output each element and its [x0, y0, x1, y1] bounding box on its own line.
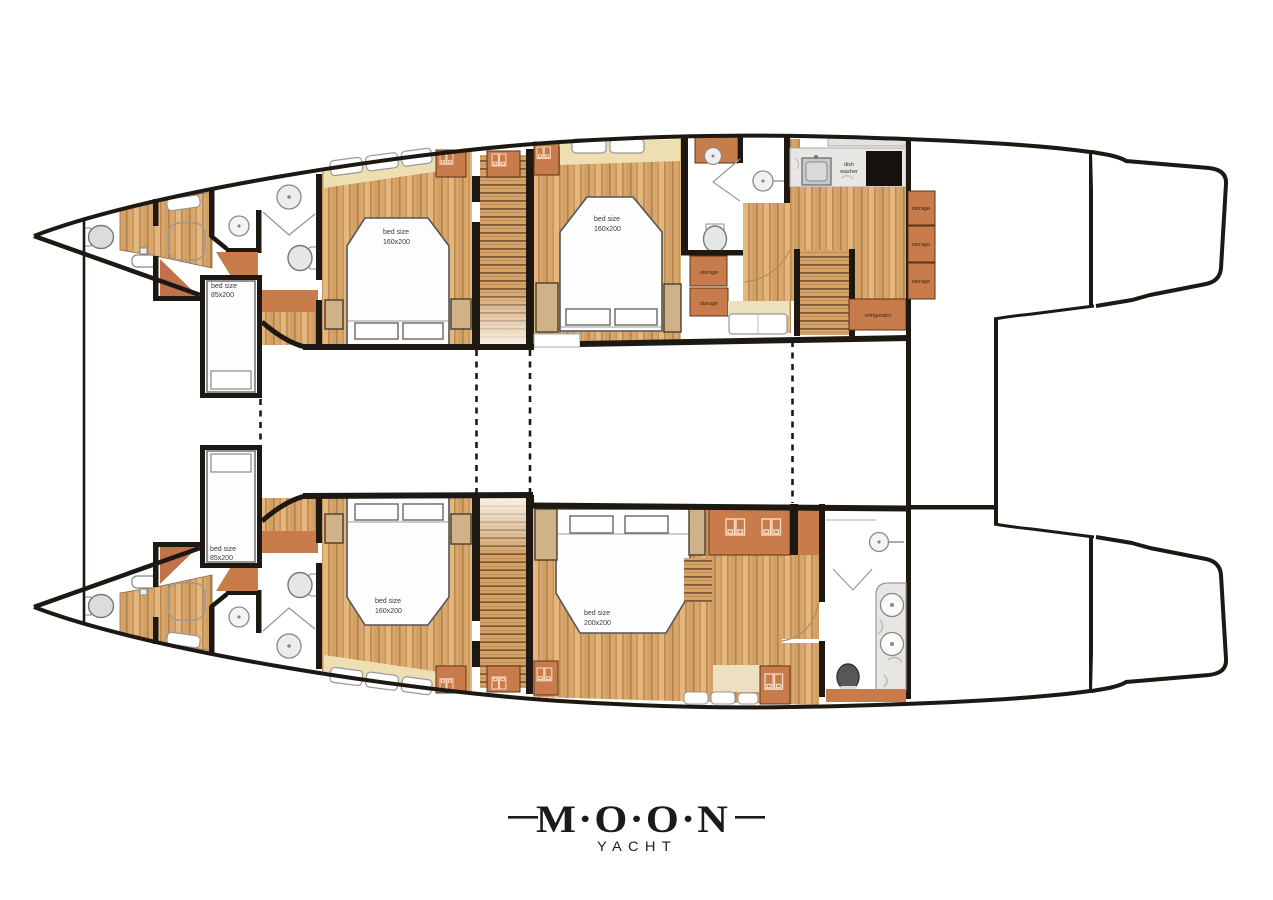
svg-text:storage: storage: [912, 242, 930, 248]
svg-text:refrigerator: refrigerator: [865, 313, 892, 319]
svg-text:storage: storage: [912, 206, 930, 212]
svg-text:storage: storage: [700, 301, 718, 307]
svg-text:200x200: 200x200: [584, 620, 611, 627]
svg-text:bed size: bed size: [594, 216, 620, 223]
svg-text:85x200: 85x200: [211, 292, 234, 299]
svg-text:washer: washer: [839, 169, 858, 175]
svg-text:bed size: bed size: [210, 546, 236, 553]
svg-text:YACHT: YACHT: [597, 838, 677, 854]
svg-text:bed size: bed size: [375, 598, 401, 605]
svg-text:160x200: 160x200: [375, 608, 402, 615]
svg-text:160x200: 160x200: [383, 239, 410, 246]
svg-text:85x200: 85x200: [210, 555, 233, 562]
svg-text:bed size: bed size: [383, 229, 409, 236]
svg-text:bed size: bed size: [211, 283, 237, 290]
svg-text:dish: dish: [844, 162, 854, 168]
svg-text:storage: storage: [700, 270, 718, 276]
svg-text:M·O·O·N: M·O·O·N: [536, 798, 730, 841]
svg-text:storage: storage: [912, 279, 930, 285]
svg-text:160x200: 160x200: [594, 226, 621, 233]
svg-text:bed size: bed size: [584, 610, 610, 617]
